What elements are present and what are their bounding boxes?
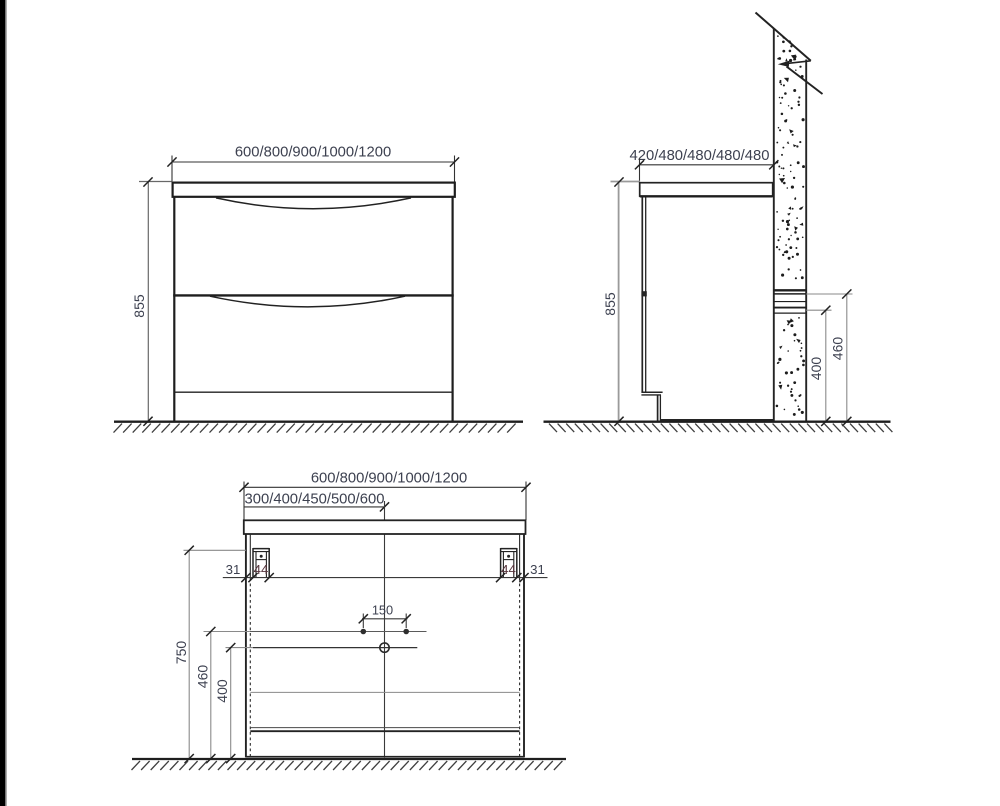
svg-text:600/800/900/1000/1200: 600/800/900/1000/1200 — [235, 145, 391, 161]
svg-text:855: 855 — [602, 292, 618, 316]
svg-text:460: 460 — [195, 665, 211, 689]
svg-text:400: 400 — [214, 679, 230, 703]
svg-text:420/480/480/480/480: 420/480/480/480/480 — [630, 148, 770, 164]
svg-text:750: 750 — [173, 641, 189, 665]
svg-text:44: 44 — [501, 562, 516, 577]
svg-text:150: 150 — [372, 603, 393, 618]
svg-text:400: 400 — [808, 357, 824, 381]
svg-text:31: 31 — [226, 562, 241, 577]
svg-text:460: 460 — [830, 337, 846, 361]
svg-text:600/800/900/1000/1200: 600/800/900/1000/1200 — [311, 470, 467, 486]
svg-text:855: 855 — [131, 294, 147, 318]
svg-text:31: 31 — [530, 562, 545, 577]
svg-text:300/400/450/500/600: 300/400/450/500/600 — [245, 491, 385, 507]
svg-text:44: 44 — [254, 562, 269, 577]
